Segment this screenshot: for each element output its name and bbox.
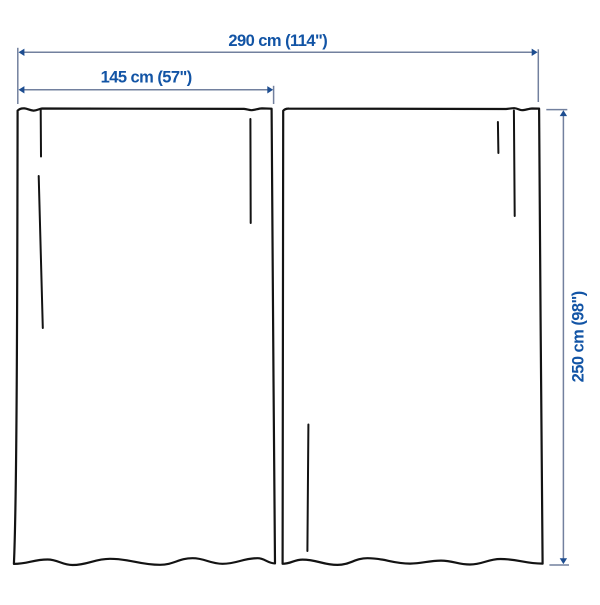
svg-text:250 cm (98"): 250 cm (98") (569, 291, 587, 382)
svg-text:145 cm (57"): 145 cm (57") (101, 69, 192, 87)
svg-text:290 cm (114"): 290 cm (114") (228, 32, 327, 50)
